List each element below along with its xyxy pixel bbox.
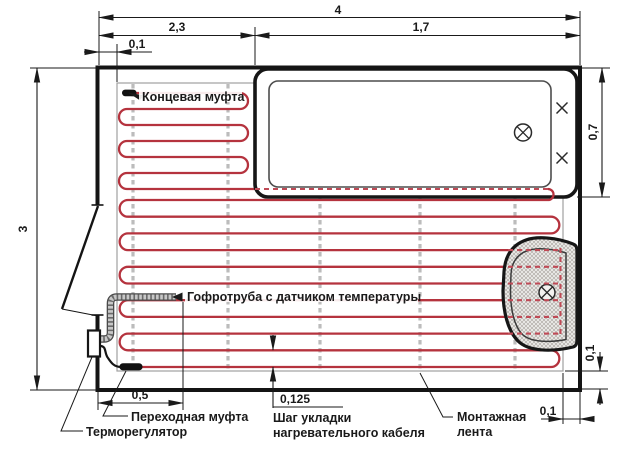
power-lead	[100, 346, 121, 367]
label-end-coupling: Концевая муфта	[142, 90, 245, 104]
leader-thermostat	[61, 357, 92, 431]
label-thermostat: Терморегулятор	[86, 425, 188, 439]
bathtub	[255, 69, 577, 197]
dimension-texts: 4 2,3 1,7 0,1 3 0,7 0,1 0,5 0,125 0,1	[16, 3, 600, 418]
label-mounting-tape-1: Монтажная	[457, 410, 526, 424]
dim-text-total-width: 4	[335, 3, 342, 17]
dim-text-right-offset: 0,1	[583, 344, 597, 361]
transition-coupling-part	[120, 363, 143, 370]
door-leaf	[62, 206, 98, 309]
dim-text-right-width: 1,7	[413, 20, 430, 34]
dim-text-left-width: 2,3	[169, 20, 186, 34]
dim-text-cable-step: 0,125	[280, 392, 310, 406]
door	[62, 206, 98, 316]
dim-text-bottom-offset: 0,1	[540, 404, 557, 418]
leader-mounting-tape	[420, 373, 453, 417]
dim-text-room-height: 3	[16, 225, 30, 232]
heating-cable-top-block	[119, 93, 255, 189]
dim-text-bathtub-width: 0,7	[586, 123, 600, 140]
label-cable-step-2: нагревательного кабеля	[273, 426, 425, 440]
label-sensor-tube: Гофротруба с датчиком температуры	[187, 290, 421, 304]
thermostat-box	[88, 331, 100, 357]
drain-icon	[539, 285, 555, 301]
dim-text-sensor-length: 0,5	[132, 388, 149, 402]
label-mounting-tape-2: лента	[457, 425, 493, 439]
leader-transition-coupling	[103, 371, 128, 416]
door-swing-line	[62, 309, 98, 316]
drain-icon	[515, 124, 532, 141]
label-transition-coupling: Переходная муфта	[131, 410, 249, 424]
heating-layout-diagram: 4 2,3 1,7 0,1 3 0,7 0,1 0,5 0,125 0,1 Ко…	[0, 0, 636, 449]
diagram-canvas: 4 2,3 1,7 0,1 3 0,7 0,1 0,5 0,125 0,1 Ко…	[0, 0, 636, 449]
dim-text-top-offset: 0,1	[129, 37, 146, 51]
label-cable-step-1: Шаг укладки	[273, 411, 351, 425]
heating-cable-main-field	[120, 200, 560, 367]
